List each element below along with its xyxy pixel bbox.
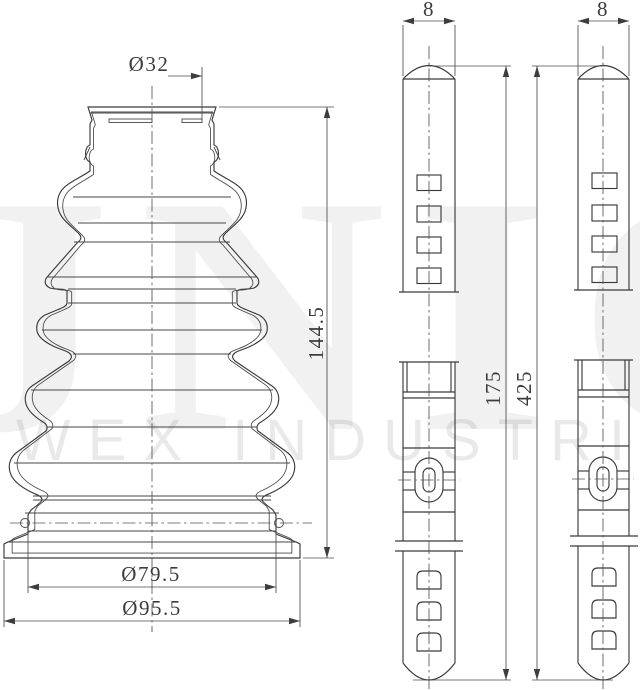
clamp-small-figure (395, 46, 463, 689)
dimension-clamp-large-width: 8 (578, 0, 629, 76)
dimension-arrow (191, 73, 202, 79)
dimension-arrow (4, 618, 15, 624)
dimension-arrow (324, 107, 330, 118)
cv-boot-drawing: Ø32 144.5 Ø79.5 (0, 0, 640, 690)
dimension-arrow (324, 547, 330, 558)
dimension-arrow (534, 66, 540, 77)
boot-outer-profile (4, 107, 300, 558)
dimension-arrow (403, 18, 414, 24)
clamp-large-figure (570, 46, 638, 689)
boot-collar-slot-right (182, 119, 202, 123)
dimension-label-height: 144.5 (304, 306, 328, 361)
dimension-arrow (534, 669, 540, 680)
dimension-label-clamp-large-width: 8 (597, 0, 609, 21)
dimension-arrow (265, 584, 276, 590)
dimension-arrow (503, 66, 509, 77)
dimension-label-clamp-large-length: 425 (512, 370, 536, 406)
cv-boot-figure (4, 86, 312, 632)
boot-collar-slot-left (109, 119, 152, 123)
dimension-label-base-diameter: Ø95.5 (122, 596, 181, 620)
boot-dimensions: Ø32 144.5 Ø79.5 (4, 52, 334, 627)
dimension-label-clamp-small-length: 175 (481, 370, 505, 406)
clamp-large-body (570, 66, 638, 681)
dimension-label-groove-diameter: Ø79.5 (121, 562, 180, 586)
dimension-label-clamp-small-width: 8 (423, 0, 435, 21)
dimension-clamp-large-length: 425 (512, 66, 613, 680)
dimension-label-top-diameter: Ø32 (129, 52, 170, 76)
dimension-top-diameter: Ø32 (129, 52, 202, 119)
dimension-arrow (28, 584, 39, 590)
clamp-dimensions: 8 8 175 (403, 0, 629, 680)
dimension-arrow (618, 18, 629, 24)
dimension-clamp-small-length: 175 (413, 66, 511, 680)
dimension-arrow (289, 618, 300, 624)
dimension-arrow (578, 18, 589, 24)
dimension-arrow (444, 18, 455, 24)
technical-drawing-page: JNIC WEX INDUSTRIES (0, 0, 640, 690)
dimension-arrow (503, 669, 509, 680)
